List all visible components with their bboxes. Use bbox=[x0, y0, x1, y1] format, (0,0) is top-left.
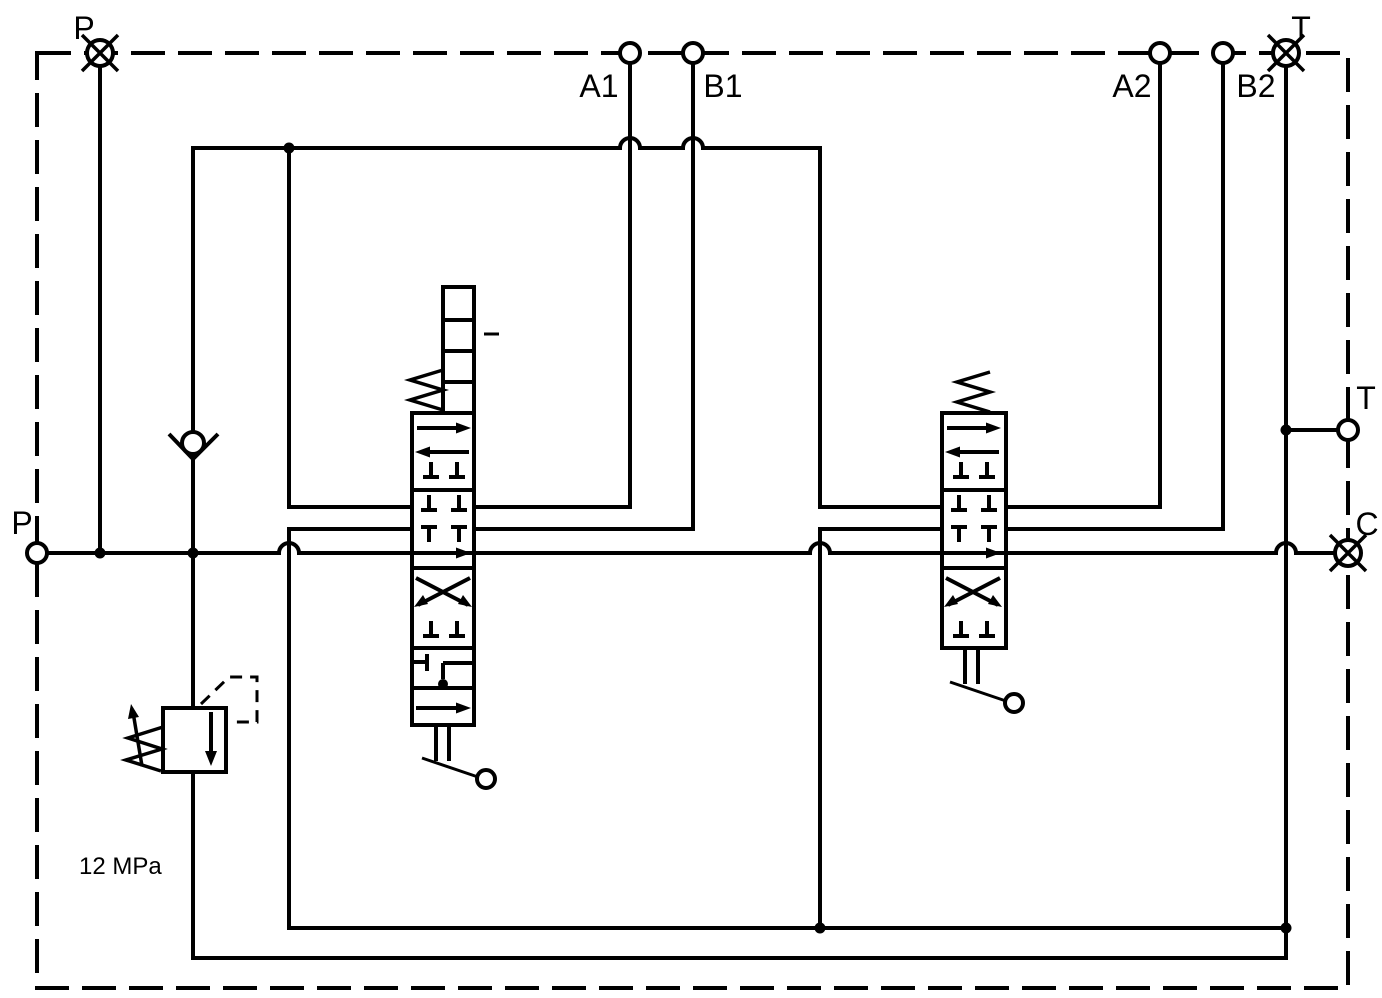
junction-dot bbox=[188, 548, 199, 559]
valve1-position-dividers bbox=[412, 490, 474, 688]
arrowhead-icon bbox=[945, 447, 960, 458]
port-label-p-top: P bbox=[73, 10, 94, 46]
junction-dot bbox=[284, 143, 295, 154]
check-valve-icon bbox=[169, 432, 218, 459]
check-valve-ball bbox=[182, 432, 204, 454]
supply-carryover-line bbox=[47, 543, 1335, 553]
port-t-side-circle bbox=[1338, 420, 1358, 440]
arrowhead-icon bbox=[944, 595, 958, 607]
valve2-spring-icon bbox=[957, 372, 990, 412]
arrowhead-icon bbox=[458, 595, 472, 607]
relief-arrowhead-icon bbox=[205, 751, 217, 766]
port-label-b2: B2 bbox=[1236, 68, 1275, 104]
valve1-pos1-paths bbox=[417, 428, 469, 452]
arrowhead-icon bbox=[414, 595, 428, 607]
junction-dot bbox=[815, 923, 826, 934]
port-label-c-right: C bbox=[1355, 506, 1378, 542]
valve2-pos1-blocked-ports bbox=[953, 462, 995, 477]
schematic-canvas: P T A1 B1 A2 B2 P T C 12 MPa bbox=[0, 0, 1382, 998]
relief-valve-body bbox=[163, 708, 226, 772]
arrowhead-icon bbox=[986, 423, 1001, 434]
arrowhead-icon bbox=[415, 447, 430, 458]
valve2-lever-icon bbox=[950, 682, 1006, 701]
valve2-pos3-blocked-ports bbox=[953, 621, 995, 636]
valve1-pos2-blocked-ports bbox=[421, 495, 467, 542]
relief-spring-icon bbox=[126, 727, 163, 771]
relief-valve-lines bbox=[193, 553, 1286, 958]
junction-dot bbox=[95, 548, 106, 559]
valve2-lever-knob bbox=[1005, 694, 1023, 712]
port-label-a2: A2 bbox=[1112, 68, 1151, 104]
carryover-arrowhead-icon bbox=[456, 548, 471, 559]
port-p-side-circle bbox=[27, 543, 47, 563]
valve2-pos1-paths bbox=[947, 428, 999, 452]
valve1-pos3-blocked-ports bbox=[423, 621, 465, 636]
port-label-t-top: T bbox=[1291, 10, 1311, 46]
carryover-arrowhead-icon bbox=[986, 548, 1001, 559]
port-label-p-left: P bbox=[11, 505, 32, 541]
arrowhead-icon bbox=[988, 595, 1002, 607]
arrowhead-icon bbox=[456, 703, 471, 714]
port-a2-circle bbox=[1150, 43, 1170, 63]
port-a1-circle bbox=[620, 43, 640, 63]
work-line-a2 bbox=[1006, 53, 1160, 507]
relief-adjust-arrowhead-icon bbox=[128, 704, 139, 719]
pressure-setting-label: 12 MPa bbox=[79, 853, 162, 880]
port-label-b1: B1 bbox=[703, 68, 742, 104]
parallel-feed-gallery bbox=[193, 138, 942, 553]
work-line-b2 bbox=[1006, 53, 1223, 529]
port-label-t-right: T bbox=[1356, 380, 1376, 416]
valve1-pos1-blocked-ports bbox=[423, 462, 465, 477]
valve2-pos2-blocked-ports bbox=[951, 495, 997, 542]
valve1-stem bbox=[436, 725, 449, 761]
port-b1-circle bbox=[683, 43, 703, 63]
junction-dot bbox=[1281, 923, 1292, 934]
arrowhead-icon bbox=[456, 423, 471, 434]
valve2-stem bbox=[965, 648, 978, 684]
valve1-spring-icon bbox=[410, 370, 443, 410]
ports bbox=[27, 35, 1366, 571]
piping bbox=[47, 53, 1338, 958]
valve2-tank-branch bbox=[820, 529, 942, 928]
hydraulic-schematic: P T A1 B1 A2 B2 P T C 12 MPa bbox=[0, 0, 1382, 998]
valve1-lever-knob bbox=[477, 770, 495, 788]
work-line-a1 bbox=[474, 53, 630, 507]
work-line-b1 bbox=[474, 53, 693, 529]
valve1-pos4-junction bbox=[438, 679, 448, 689]
valve1-pos4-paths bbox=[412, 654, 474, 679]
valve1-feed-branch bbox=[289, 148, 412, 507]
port-b2-circle bbox=[1213, 43, 1233, 63]
directional-valve-2 bbox=[942, 372, 1023, 712]
directional-valve-1 bbox=[410, 287, 499, 788]
valve1-detent-cells bbox=[443, 320, 474, 382]
junction-dot bbox=[1281, 425, 1292, 436]
port-label-a1: A1 bbox=[579, 68, 618, 104]
valve2-envelope bbox=[942, 413, 1006, 648]
